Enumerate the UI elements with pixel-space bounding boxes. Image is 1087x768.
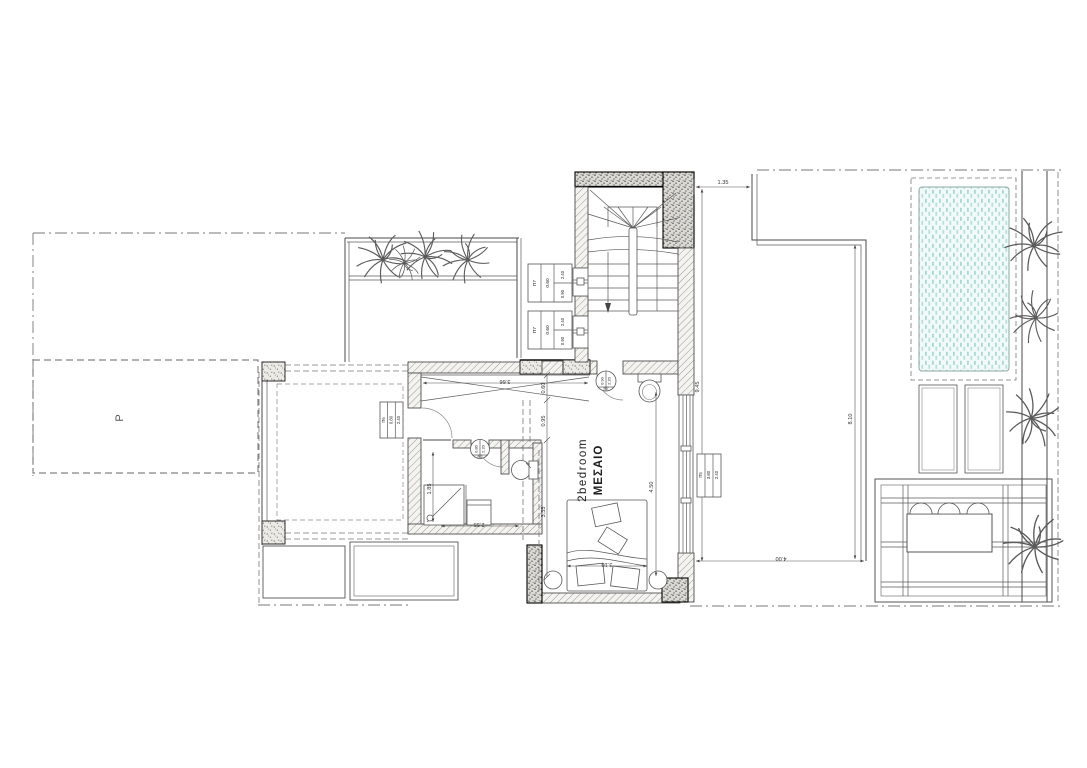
cushion [576, 563, 605, 586]
svg-text:ΜΕΣΑΙΟ: ΜΕΣΑΙΟ [593, 445, 605, 496]
svg-text:2.55: 2.55 [474, 521, 485, 527]
svg-text:0.95: 0.95 [541, 416, 547, 427]
room-label: 2bedroom ΜΕΣΑΙΟ [577, 438, 605, 502]
svg-text:9.45: 9.45 [695, 382, 701, 393]
svg-text:0.80: 0.80 [389, 415, 394, 424]
svg-text:4.00: 4.00 [776, 555, 787, 561]
svg-text:2.20: 2.20 [481, 444, 486, 453]
parapet-inner [757, 174, 861, 561]
tag-p7a: Π7 0.60 0.90 2.40 [528, 264, 572, 302]
svg-text:Π5: Π5 [698, 472, 703, 478]
column [262, 362, 285, 381]
parapet-outer [752, 174, 866, 561]
floor-plan-page: P [0, 0, 1087, 768]
sun-lounger [919, 385, 957, 473]
window-p5-sliding [679, 395, 693, 553]
bedroom-toilet [638, 374, 661, 402]
hallway [421, 377, 589, 440]
svg-text:2bedroom: 2bedroom [577, 438, 589, 502]
svg-text:Π7: Π7 [532, 327, 538, 333]
parking-label: P [114, 414, 126, 421]
dim-terrace-w: 4.00 [696, 555, 864, 561]
bed [567, 500, 647, 591]
svg-text:2.40: 2.40 [560, 270, 565, 279]
bar-stool [967, 503, 989, 514]
tag-p7b: Π7 0.60 0.90 2.40 [528, 311, 572, 349]
veranda [262, 362, 408, 545]
plant-icon [1001, 385, 1063, 449]
svg-text:Μ3: Μ3 [478, 455, 483, 459]
column [262, 521, 285, 544]
svg-text:2.40: 2.40 [396, 415, 401, 424]
svg-text:0.90: 0.90 [600, 376, 605, 385]
svg-text:8.10: 8.10 [848, 414, 854, 425]
svg-text:2.40: 2.40 [714, 470, 719, 479]
dim-right-wall: 9.45 [695, 189, 702, 561]
svg-text:0.80: 0.80 [474, 444, 479, 453]
pool-area [911, 178, 1016, 380]
parking-area: P [33, 360, 258, 473]
plant-icon [1001, 214, 1065, 276]
svg-text:1.35: 1.35 [718, 180, 729, 186]
svg-text:0.60: 0.60 [545, 325, 551, 335]
svg-text:3.10: 3.10 [602, 561, 613, 567]
svg-text:3.35: 3.35 [541, 507, 547, 518]
opening-tags: Π7 0.60 0.90 2.40 Π7 0.60 0.90 2.40 Π6 0… [380, 264, 721, 497]
planter-plants [357, 222, 500, 292]
svg-text:3.66: 3.66 [500, 378, 511, 384]
svg-text:2.40: 2.40 [560, 317, 565, 326]
plant-icon [434, 227, 500, 292]
bar-stool [910, 503, 932, 514]
door-arc-veranda [422, 408, 452, 438]
tag-m2: 0.90 2.20 Μ2 [596, 371, 616, 391]
lower-terrace [263, 542, 458, 600]
dim-terrace-v: 8.10 [848, 245, 855, 559]
toilet [512, 461, 539, 480]
bar-table [907, 514, 992, 552]
window-p7b [573, 316, 588, 348]
svg-text:4.50: 4.50 [649, 482, 655, 493]
svg-text:1.85: 1.85 [427, 484, 433, 495]
svg-text:Π6: Π6 [381, 417, 386, 423]
window-p7a [573, 268, 588, 296]
dim-top: 1.35 [694, 179, 752, 195]
svg-text:Μ2: Μ2 [604, 387, 609, 391]
svg-text:0.90: 0.90 [560, 289, 565, 298]
svg-text:0.90: 0.90 [560, 336, 565, 345]
svg-text:Π7: Π7 [532, 280, 538, 286]
right-terrace [752, 174, 866, 561]
tag-m3: 0.80 2.20 Μ3 [471, 440, 490, 459]
cushion [611, 566, 640, 589]
plant-icon [996, 510, 1071, 583]
bar-stool [938, 503, 960, 514]
sun-lounger [965, 385, 1003, 473]
stair-rail [629, 228, 637, 315]
svg-text:0.60: 0.60 [545, 278, 551, 288]
tag-p5: Π5 3.80 2.40 [697, 454, 721, 497]
tag-p6: Π6 0.80 2.40 [380, 402, 403, 438]
sun-loungers [919, 385, 1003, 473]
svg-text:3.80: 3.80 [706, 470, 711, 479]
svg-text:2.20: 2.20 [607, 376, 612, 385]
pool-water [919, 187, 1009, 371]
floor-plan-canvas: P [0, 0, 1087, 768]
side-table [649, 571, 667, 589]
upper-terrace [345, 222, 521, 362]
svg-text:0.60: 0.60 [541, 383, 547, 394]
dim-bedroom-v: 4.50 [649, 392, 656, 576]
